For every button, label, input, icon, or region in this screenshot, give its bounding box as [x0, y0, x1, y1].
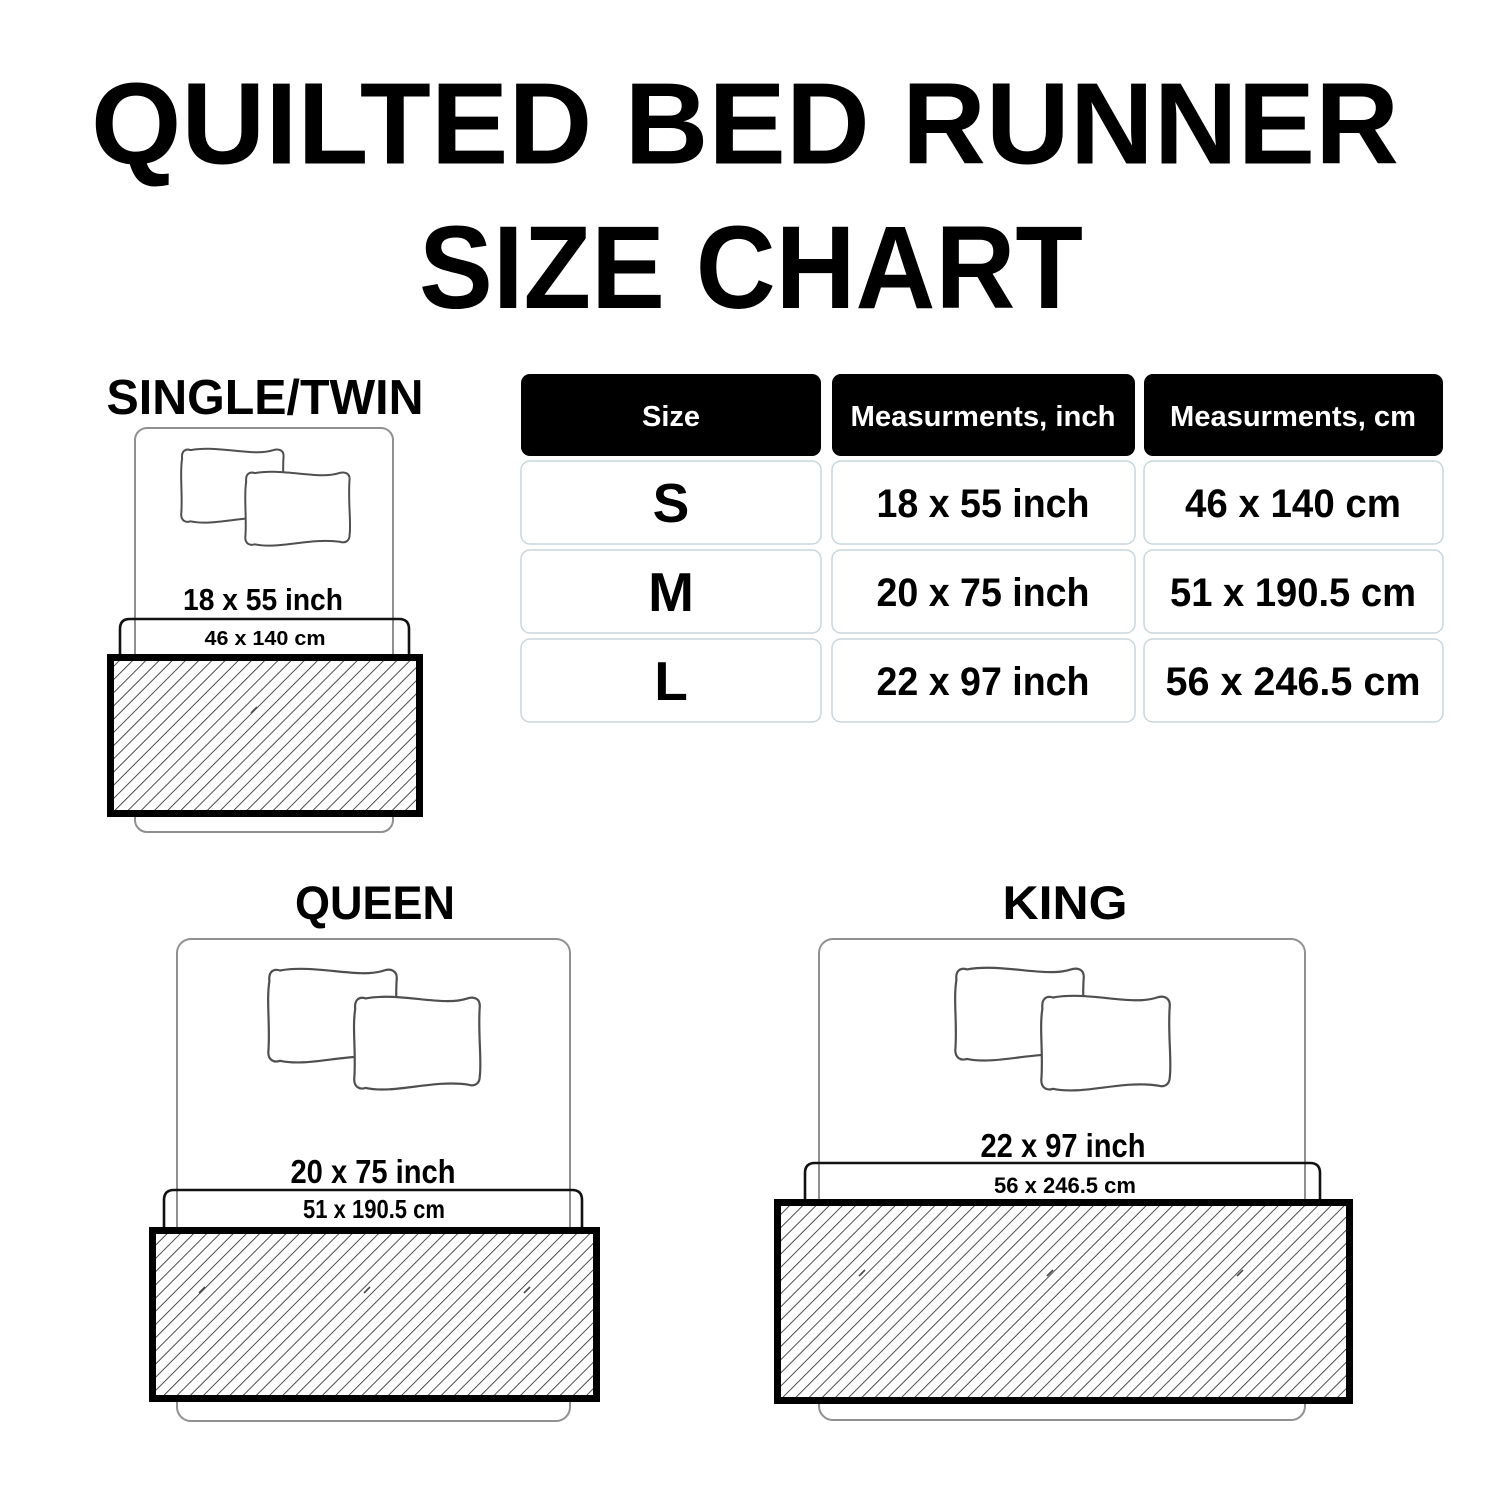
svg-text:Measurments, inch: Measurments, inch	[851, 401, 1116, 433]
svg-text:18 x 55 inch: 18 x 55 inch	[877, 482, 1090, 526]
svg-text:S: S	[653, 472, 690, 534]
svg-text:SIZE CHART: SIZE CHART	[419, 202, 1083, 334]
svg-text:SINGLE/TWIN: SINGLE/TWIN	[107, 371, 424, 425]
svg-text:L: L	[654, 650, 688, 712]
svg-text:22 x 97 inch: 22 x 97 inch	[877, 660, 1090, 704]
svg-text:QUEEN: QUEEN	[295, 876, 455, 929]
svg-text:QUILTED BED RUNNER: QUILTED BED RUNNER	[91, 59, 1399, 189]
svg-text:22 x 97 inch: 22 x 97 inch	[981, 1127, 1146, 1164]
svg-text:20 x 75 inch: 20 x 75 inch	[877, 571, 1090, 615]
svg-text:56 x 246.5 cm: 56 x 246.5 cm	[1166, 660, 1421, 704]
svg-text:Measurments, cm: Measurments, cm	[1170, 401, 1416, 433]
svg-text:46 x 140 cm: 46 x 140 cm	[205, 628, 326, 650]
svg-text:18 x 55 inch: 18 x 55 inch	[183, 582, 343, 617]
svg-text:20 x 75 inch: 20 x 75 inch	[291, 1153, 456, 1190]
svg-text:51 x 190.5 cm: 51 x 190.5 cm	[303, 1194, 445, 1224]
svg-text:KING: KING	[1003, 876, 1128, 929]
svg-text:46 x 140 cm: 46 x 140 cm	[1185, 482, 1401, 526]
svg-text:Size: Size	[642, 401, 700, 433]
svg-text:56 x 246.5 cm: 56 x 246.5 cm	[994, 1173, 1136, 1198]
svg-text:M: M	[648, 561, 694, 623]
svg-text:51 x 190.5 cm: 51 x 190.5 cm	[1170, 571, 1416, 615]
